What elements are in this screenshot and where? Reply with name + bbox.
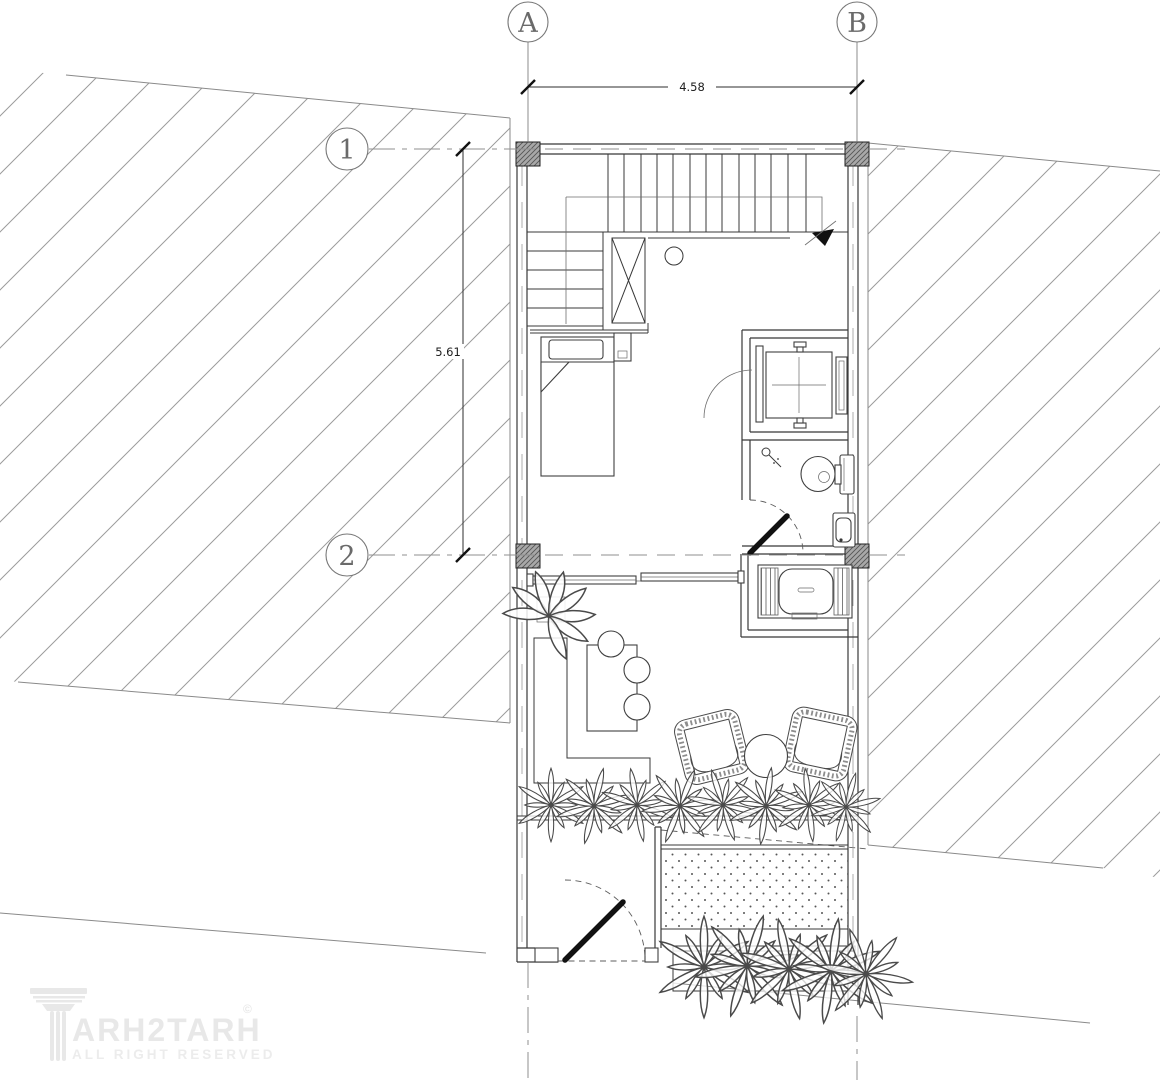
grid-bubble-a-label: A [517, 8, 538, 39]
stair-treads-lower [527, 232, 603, 330]
toilet [801, 455, 854, 494]
chair [598, 631, 624, 657]
chair [624, 657, 650, 683]
armchair-right [781, 705, 859, 783]
grid-bubble-b: B [837, 2, 877, 42]
watermark-copyright: © [243, 1002, 252, 1016]
bathtub [758, 565, 852, 619]
dim-height-label: 5.61 [435, 345, 461, 359]
shower-head-icon [762, 448, 781, 467]
elevator-door-panel [756, 346, 763, 422]
grid-bubble-2: 2 [326, 534, 368, 576]
column-b1 [845, 142, 869, 166]
elevator [704, 342, 847, 428]
plants [502, 571, 922, 1033]
door-jamb-left [535, 948, 558, 962]
street-boundary-lines [0, 830, 1090, 1023]
wc-room [750, 448, 855, 553]
site-neighbour-right [868, 143, 1160, 878]
watermark-brand: ARH2TARH [72, 1012, 262, 1048]
staircase [527, 154, 836, 330]
elevator-counterweight [836, 357, 847, 414]
dim-width-label: 4.58 [679, 80, 705, 94]
plant [518, 768, 584, 842]
column-a1 [516, 142, 540, 166]
floor-plan-sheet: 4.58 5.61 A B 1 2 [0, 0, 1160, 1080]
grid-bubble-a: A [508, 2, 548, 42]
grid-bubble-1: 1 [326, 128, 368, 170]
stair-walk-line [566, 197, 836, 324]
site-neighbour-left [0, 69, 510, 723]
dimension-horizontal: 4.58 [521, 80, 864, 94]
column-a2 [516, 544, 540, 568]
grid-bubble-1-label: 1 [338, 135, 355, 166]
stair-void [612, 238, 645, 323]
chair [624, 694, 650, 720]
paved-patio [661, 845, 848, 929]
column-b2 [845, 544, 869, 568]
watermark: ARH2TARH © ALL RIGHT RESERVED [30, 988, 276, 1062]
door-jamb-right [645, 948, 658, 962]
nightstand [614, 333, 631, 361]
dining-table [587, 631, 650, 731]
pillow [549, 340, 603, 359]
bedroom [541, 333, 631, 476]
wc-door [750, 500, 803, 553]
entry-door [558, 880, 645, 961]
bed [541, 337, 614, 476]
sink [833, 513, 855, 547]
coffee-table [745, 735, 788, 778]
stair-newel [665, 247, 683, 265]
watermark-tagline: ALL RIGHT RESERVED [72, 1047, 276, 1062]
grid-bubble-2-label: 2 [338, 541, 355, 572]
grid-bubble-b-label: B [847, 8, 867, 39]
stair-treads-upper [608, 154, 806, 232]
elevator-landing-door-swing [704, 370, 752, 418]
